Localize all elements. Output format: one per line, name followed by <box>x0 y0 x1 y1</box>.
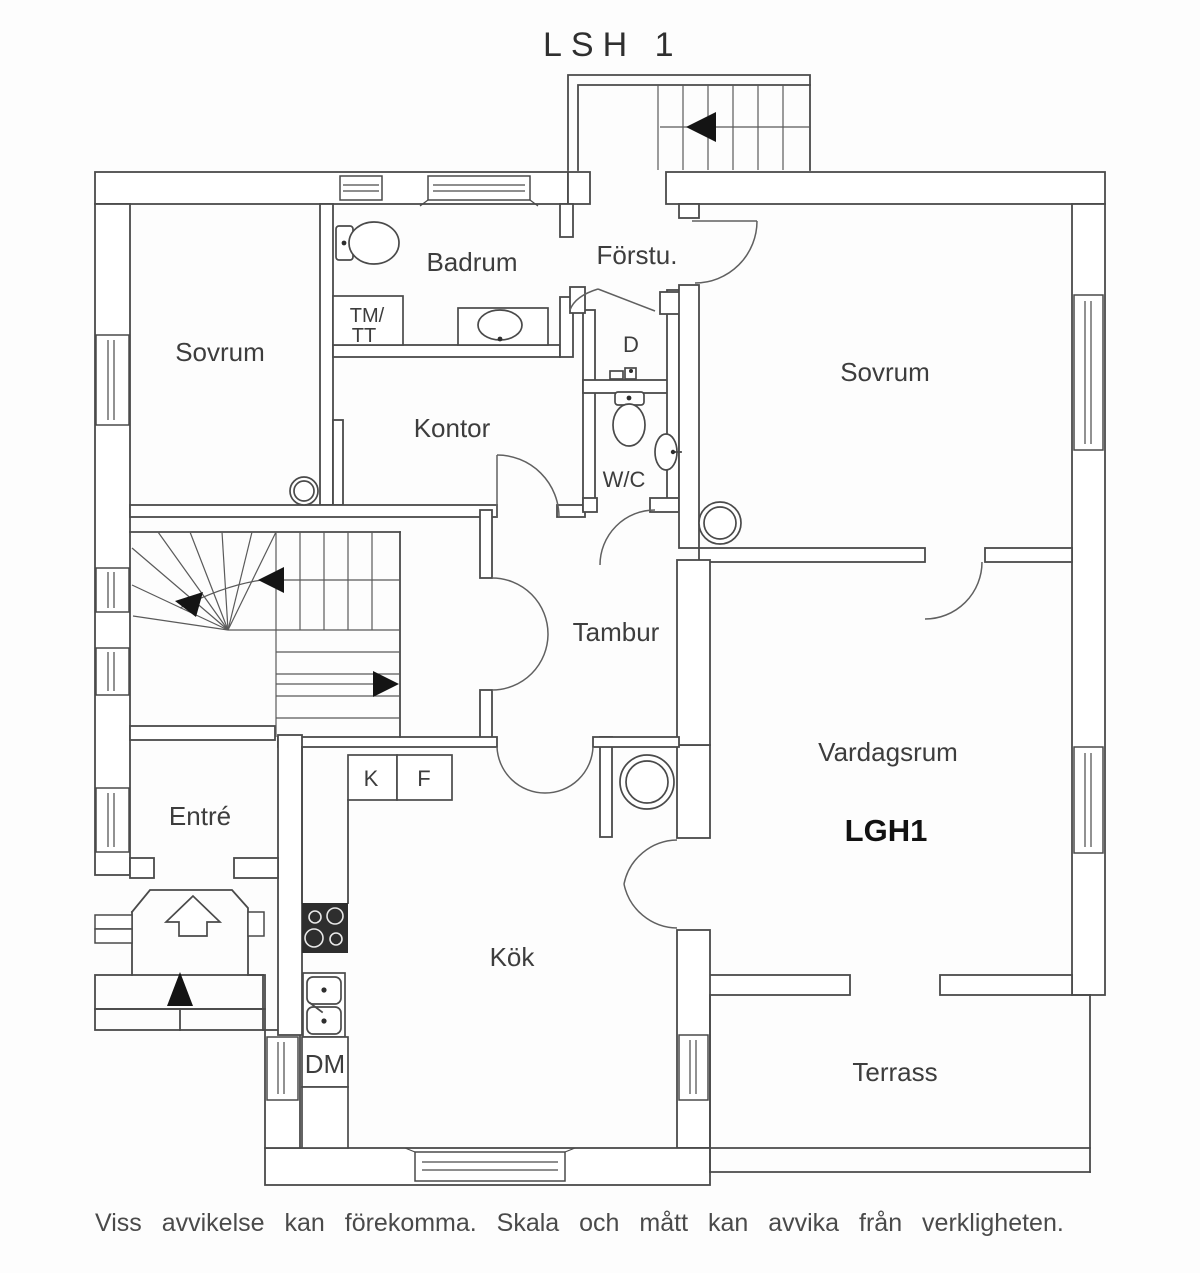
outer-walls <box>95 172 1105 1185</box>
interior-staircase <box>130 532 400 737</box>
closet-label-dm: DM <box>305 1049 345 1079</box>
room-label-terrass: Terrass <box>852 1057 937 1087</box>
external-staircase <box>568 75 810 170</box>
toilet-icon <box>613 392 645 446</box>
chimney-icon <box>699 502 741 544</box>
window-icon <box>1074 747 1103 853</box>
shoes-icon <box>610 368 636 379</box>
door-icon <box>692 221 757 283</box>
chimney-icon <box>620 755 674 809</box>
room-label-sovrum-left: Sovrum <box>175 337 265 367</box>
door-icon <box>600 510 655 565</box>
chimney-icon <box>290 477 318 505</box>
stair-up-arrow-icon <box>175 592 203 617</box>
kitchen-sink-icon <box>303 973 345 1037</box>
cabinet-box <box>302 1087 348 1148</box>
stove-icon <box>302 903 348 953</box>
bathroom-sink-icon <box>458 308 548 345</box>
room-label-kok: Kök <box>490 942 536 972</box>
room-label-entre: Entré <box>169 801 231 831</box>
apartment-label: LGH1 <box>845 813 928 848</box>
window-icon <box>340 176 382 200</box>
double-door-icon <box>492 578 548 690</box>
closet-label-k: K <box>364 766 379 791</box>
floor-plan-page: LSH 1 Sovrum Badrum Förstu. TM/ TT D W/C… <box>0 0 1200 1273</box>
room-label-d: D <box>623 332 639 357</box>
disclaimer-text: Viss avvikelse kan förekomma. Skala och … <box>95 1209 1064 1237</box>
window-icon <box>96 788 129 852</box>
closet-label-tm: TM/ <box>350 305 385 327</box>
window-icon <box>679 1035 708 1100</box>
window-icon <box>1074 295 1103 450</box>
stair-direction-arrow-icon <box>686 112 716 142</box>
window-icon <box>96 335 129 425</box>
window-icon <box>96 568 129 612</box>
room-label-kontor: Kontor <box>414 413 491 443</box>
door-icon <box>925 562 982 619</box>
labels: LSH 1 Sovrum Badrum Förstu. TM/ TT D W/C… <box>95 26 1064 1237</box>
stair-up-arrow-icon <box>373 671 399 697</box>
room-label-tambur: Tambur <box>573 617 660 647</box>
window-icon <box>96 648 129 695</box>
entrance-direction-arrow-icon <box>166 896 220 936</box>
room-label-forstu: Förstu. <box>597 240 678 270</box>
closet-label-tt: TT <box>352 325 376 347</box>
entry-arrow-icon <box>167 972 193 1006</box>
closet-label-f: F <box>417 766 430 791</box>
double-door-icon <box>624 840 677 928</box>
plan-title: LSH 1 <box>543 26 683 64</box>
window-icon <box>267 1037 298 1100</box>
room-label-sovrum-right: Sovrum <box>840 357 930 387</box>
toilet-icon <box>336 222 399 264</box>
floor-plan: LSH 1 Sovrum Badrum Förstu. TM/ TT D W/C… <box>0 0 1200 1273</box>
room-label-badrum: Badrum <box>426 247 517 277</box>
room-label-vardagsrum: Vardagsrum <box>818 737 958 767</box>
double-door-icon <box>497 747 593 793</box>
door-icon <box>497 455 559 517</box>
stair-up-arrow-icon <box>258 567 284 593</box>
room-label-wc: W/C <box>603 467 646 492</box>
entrance-porch <box>95 858 278 1030</box>
window-icon <box>405 1148 575 1181</box>
